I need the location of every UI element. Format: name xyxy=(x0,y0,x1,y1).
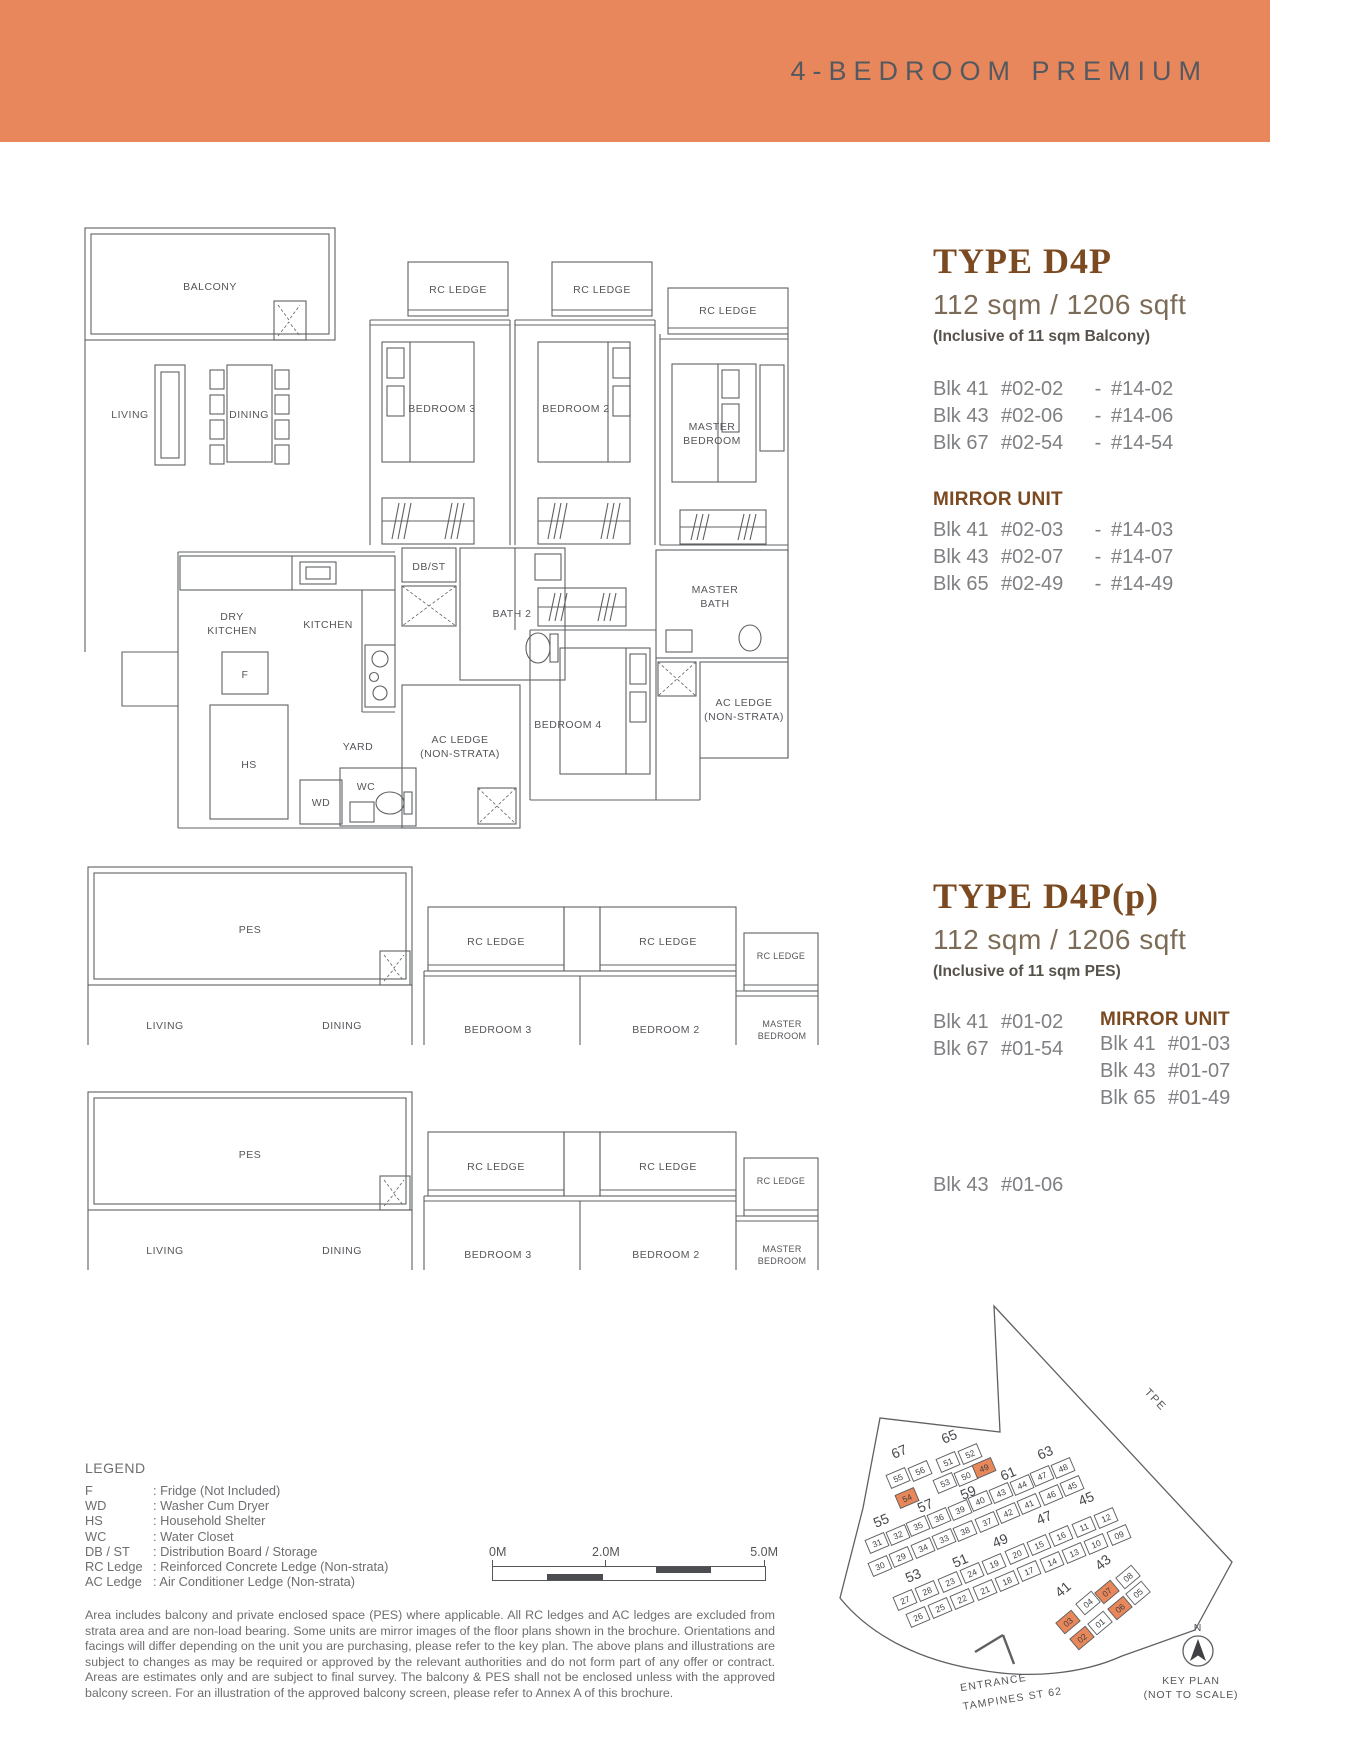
room-label-bedroom2: BEDROOM 2 xyxy=(542,403,610,415)
room-label-ac-ledge: (NON-STRATA) xyxy=(420,748,500,760)
key-plan-unit-highlighted: 54 xyxy=(895,1488,919,1509)
key-plan-unit: 12 xyxy=(1094,1508,1118,1529)
type-d4p-section: TYPE D4P 112 sqm / 1206 sqft (Inclusive … xyxy=(933,243,1323,598)
key-plan-unit: 19 xyxy=(982,1554,1006,1575)
room-label-ac-ledge: (NON-STRATA) xyxy=(704,711,784,723)
unit-row: Blk 67 #02-54 - #14-54 xyxy=(933,430,1323,457)
unit-to: #14-02 xyxy=(1111,376,1173,403)
unit-num: #01-07 xyxy=(1168,1058,1230,1085)
key-plan-unit: 20 xyxy=(1005,1544,1029,1565)
unit-row: Blk 65 #02-49 - #14-49 xyxy=(933,571,1323,598)
type-d4p-p-title: TYPE D4P(p) xyxy=(933,878,1333,916)
type-d4p-area-note: (Inclusive of 11 sqm Balcony) xyxy=(933,328,1323,346)
unit-to: #14-03 xyxy=(1111,517,1173,544)
room-label-ac-ledge: AC LEDGE xyxy=(715,697,772,709)
unit-to: #14-06 xyxy=(1111,403,1173,430)
room-label-master-bath: BATH xyxy=(700,598,729,610)
legend-desc: : Reinforced Concrete Ledge (Non-strata) xyxy=(153,1559,388,1574)
key-plan-block-label: 41 xyxy=(1052,1578,1074,1600)
unit-blk: Blk 65 xyxy=(1100,1085,1168,1112)
unit-row: Blk 43 #01-07 xyxy=(1100,1058,1230,1085)
unit-to: #14-49 xyxy=(1111,571,1173,598)
key-plan-caption: (NOT TO SCALE) xyxy=(1144,1689,1239,1701)
key-plan-unit: 33 xyxy=(932,1529,956,1550)
key-plan-unit: 30 xyxy=(868,1556,892,1577)
key-plan-block-label: 67 xyxy=(889,1441,910,1462)
unit-blk: Blk 43 xyxy=(933,1172,1001,1199)
scale-bar: 0M 2.0M 5.0M xyxy=(492,1545,770,1585)
unit-separator: - xyxy=(1085,571,1111,598)
room-label-bedroom3: BEDROOM 3 xyxy=(464,1249,532,1261)
unit-to: #14-07 xyxy=(1111,544,1173,571)
unit-row: Blk 43 #02-07 - #14-07 xyxy=(933,544,1323,571)
unit-blk: Blk 67 xyxy=(933,430,1001,457)
key-plan-unit: 31 xyxy=(865,1533,889,1554)
entrance-arrow xyxy=(975,1635,1014,1664)
room-label-db-st: DB/ST xyxy=(412,561,446,573)
unit-num: #01-54 xyxy=(1001,1036,1063,1063)
unit-row: Blk 41 #02-02 - #14-02 xyxy=(933,376,1323,403)
compass-north-label: N xyxy=(1194,1622,1202,1634)
key-plan-unit: 51 xyxy=(936,1452,960,1473)
key-plan-unit: 10 xyxy=(1084,1534,1108,1555)
room-label-rc-ledge: RC LEDGE xyxy=(639,1161,697,1173)
unit-blk: Blk 67 xyxy=(933,1036,1001,1063)
scale-bar-rule xyxy=(492,1566,766,1581)
unit-blk: Blk 43 xyxy=(933,544,1001,571)
compass-needle-icon xyxy=(1190,1639,1206,1661)
road-label-tpe: TPE xyxy=(1142,1386,1169,1413)
key-plan-unit: 28 xyxy=(915,1581,939,1602)
room-label-pes: PES xyxy=(239,1149,262,1161)
unit-blk: Blk 41 xyxy=(933,1009,1001,1036)
legend-desc: : Washer Cum Dryer xyxy=(153,1498,269,1513)
legend-abbr: WD xyxy=(85,1498,153,1513)
unit-blk: Blk 41 xyxy=(933,376,1001,403)
key-plan-unit: 17 xyxy=(1017,1561,1041,1582)
key-plan-unit: 25 xyxy=(928,1598,952,1619)
type-d4p-p-unit-list: Blk 41 #01-02 Blk 67 #01-54 xyxy=(933,1009,1100,1112)
unit-blk: Blk 41 xyxy=(933,517,1001,544)
legend-row: F : Fridge (Not Included) xyxy=(85,1483,388,1498)
room-label-rc-ledge: RC LEDGE xyxy=(757,1176,805,1186)
key-plan-unit: 27 xyxy=(893,1590,917,1611)
key-plan-block-label: 55 xyxy=(871,1510,892,1531)
room-label-living: LIVING xyxy=(146,1020,183,1032)
legend-desc: : Air Conditioner Ledge (Non-strata) xyxy=(153,1574,355,1589)
room-label-rc-ledge: RC LEDGE xyxy=(573,284,631,296)
unit-separator: - xyxy=(1085,517,1111,544)
room-label-hs: HS xyxy=(241,759,257,771)
key-plan-unit: 43 xyxy=(989,1483,1013,1504)
page-title: 4-BEDROOM PREMIUM xyxy=(790,0,1208,142)
room-label-dry-kitchen: DRY xyxy=(220,611,243,623)
key-plan-unit: 15 xyxy=(1027,1535,1051,1556)
room-label-dry-kitchen: KITCHEN xyxy=(207,625,257,637)
unit-from: #02-49 xyxy=(1001,571,1085,598)
key-plan-unit: 32 xyxy=(886,1525,910,1546)
unit-row: Blk 65 #01-49 xyxy=(1100,1085,1230,1112)
legend-abbr: RC Ledge xyxy=(85,1559,153,1574)
room-label-rc-ledge: RC LEDGE xyxy=(639,936,697,948)
disclaimer-text: Area includes balcony and private enclos… xyxy=(85,1608,775,1702)
type-d4p-mirror-list: Blk 41 #02-03 - #14-03 Blk 43 #02-07 - #… xyxy=(933,517,1323,598)
key-plan-unit: 11 xyxy=(1072,1517,1096,1538)
key-plan-unit: 39 xyxy=(948,1500,972,1521)
key-plan-unit: 56 xyxy=(908,1461,932,1482)
room-label-rc-ledge: RC LEDGE xyxy=(467,936,525,948)
room-label-bedroom3: BEDROOM 3 xyxy=(464,1024,532,1036)
scale-bar-segment xyxy=(656,1567,711,1573)
room-label-wc: WC xyxy=(357,781,376,793)
legend-desc: : Household Shelter xyxy=(153,1513,265,1528)
room-label-master-bedroom: BEDROOM xyxy=(758,1031,807,1041)
legend-abbr: F xyxy=(85,1483,153,1498)
legend-abbr: DB / ST xyxy=(85,1544,153,1559)
key-plan-unit: 13 xyxy=(1062,1543,1086,1564)
key-plan-unit: 16 xyxy=(1049,1526,1073,1547)
key-plan-unit: 22 xyxy=(950,1589,974,1610)
legend-title: LEGEND xyxy=(85,1460,388,1476)
room-label-rc-ledge: RC LEDGE xyxy=(467,1161,525,1173)
legend-row: WD : Washer Cum Dryer xyxy=(85,1498,388,1513)
room-label-kitchen: KITCHEN xyxy=(303,619,353,631)
unit-num: #01-49 xyxy=(1168,1085,1230,1112)
legend-abbr: AC Ledge xyxy=(85,1574,153,1589)
legend-abbr: WC xyxy=(85,1529,153,1544)
unit-from: #02-06 xyxy=(1001,403,1085,430)
unit-from: #02-03 xyxy=(1001,517,1085,544)
legend-row: WC : Water Closet xyxy=(85,1529,388,1544)
key-plan-block-label: 53 xyxy=(903,1565,924,1586)
key-plan: 6765636159575553514947454341 55565451525… xyxy=(770,1290,1240,1720)
room-label-dining: DINING xyxy=(322,1020,362,1032)
room-label-bedroom3: BEDROOM 3 xyxy=(408,403,476,415)
mirror-unit-heading: MIRROR UNIT xyxy=(1100,1009,1230,1031)
room-label-rc-ledge: RC LEDGE xyxy=(429,284,487,296)
unit-num: #01-02 xyxy=(1001,1009,1063,1036)
key-plan-unit: 01 xyxy=(1088,1611,1112,1635)
site-boundary xyxy=(840,1306,1232,1674)
key-plan-unit: 34 xyxy=(911,1538,935,1559)
key-plan-unit: 26 xyxy=(906,1607,930,1628)
type-d4p-unit-list: Blk 41 #02-02 - #14-02 Blk 43 #02-06 - #… xyxy=(933,376,1323,457)
unit-separator: - xyxy=(1085,376,1111,403)
unit-num: #01-06 xyxy=(1001,1172,1063,1199)
room-label-bedroom2: BEDROOM 2 xyxy=(632,1024,700,1036)
unit-blk: Blk 65 xyxy=(933,571,1001,598)
type-d4p-p-section: TYPE D4P(p) 112 sqm / 1206 sqft (Inclusi… xyxy=(933,878,1333,1112)
key-plan-unit: 35 xyxy=(906,1516,930,1537)
legend-row: HS : Household Shelter xyxy=(85,1513,388,1528)
room-label-rc-ledge: RC LEDGE xyxy=(757,951,805,961)
key-plan-unit: 55 xyxy=(886,1468,910,1489)
unit-blk: Blk 43 xyxy=(1100,1058,1168,1085)
entrance-label: ENTRANCE xyxy=(959,1672,1027,1694)
room-label-dining: DINING xyxy=(229,409,269,421)
key-plan-unit: 53 xyxy=(933,1473,957,1494)
key-plan-unit: 14 xyxy=(1040,1552,1064,1573)
legend-row: RC Ledge : Reinforced Concrete Ledge (No… xyxy=(85,1559,388,1574)
scale-label-0m: 0M xyxy=(489,1545,506,1559)
legend-desc: : Fridge (Not Included) xyxy=(153,1483,280,1498)
legend-row: AC Ledge : Air Conditioner Ledge (Non-st… xyxy=(85,1574,388,1589)
room-label-bedroom4: BEDROOM 4 xyxy=(534,719,602,731)
scale-bar-segment xyxy=(547,1574,603,1580)
type-d4p-title: TYPE D4P xyxy=(933,243,1323,281)
floor-plan-type-d4p-p-2: PES LIVING DINING RC LEDGE RC LEDGE RC L… xyxy=(60,1080,820,1270)
room-label-rc-ledge: RC LEDGE xyxy=(699,305,757,317)
key-plan-unit: 42 xyxy=(996,1503,1020,1524)
unit-separator: - xyxy=(1085,430,1111,457)
unit-row: Blk 41 #02-03 - #14-03 xyxy=(933,517,1323,544)
unit-num: #01-03 xyxy=(1168,1031,1230,1058)
key-plan-unit: 29 xyxy=(889,1547,913,1568)
legend-desc: : Distribution Board / Storage xyxy=(153,1544,317,1559)
type-d4p-p-area-note: (Inclusive of 11 sqm PES) xyxy=(933,963,1333,981)
room-label-bedroom2: BEDROOM 2 xyxy=(632,1249,700,1261)
key-plan-unit: 46 xyxy=(1039,1485,1063,1506)
room-label-pes: PES xyxy=(239,924,262,936)
key-plan-unit-highlighted: 03 xyxy=(1056,1610,1080,1634)
key-plan-unit: 48 xyxy=(1051,1458,1075,1479)
unit-separator: - xyxy=(1085,544,1111,571)
legend-desc: : Water Closet xyxy=(153,1529,234,1544)
unit-separator: - xyxy=(1085,403,1111,430)
unit-from: #02-02 xyxy=(1001,376,1085,403)
type-d4p-p-mirror-list: MIRROR UNIT Blk 41 #01-03 Blk 43 #01-07 … xyxy=(1100,1009,1230,1112)
floor-plan-type-d4p: BALCONY LIVING DINING RC LEDGE RC LEDGE … xyxy=(60,200,790,830)
unit-row: Blk 41 #01-02 xyxy=(933,1009,1100,1036)
key-plan-unit: 09 xyxy=(1107,1525,1131,1546)
scale-label-2m: 2.0M xyxy=(592,1545,620,1559)
type-d4p-area: 112 sqm / 1206 sqft xyxy=(933,289,1323,321)
unit-row: Blk 43 #02-06 - #14-06 xyxy=(933,403,1323,430)
key-plan-unit-highlighted: 06 xyxy=(1108,1596,1132,1620)
legend-abbr: HS xyxy=(85,1513,153,1528)
legend-row: DB / ST : Distribution Board / Storage xyxy=(85,1544,388,1559)
key-plan-unit-highlighted: 02 xyxy=(1070,1626,1094,1650)
key-plan-block-label: 65 xyxy=(939,1426,960,1447)
key-plan-unit: 47 xyxy=(1030,1466,1054,1487)
room-label-dining: DINING xyxy=(322,1245,362,1257)
key-plan-block-label: 63 xyxy=(1035,1442,1056,1463)
key-plan-unit: 23 xyxy=(938,1572,962,1593)
key-plan-block-label: 47 xyxy=(1034,1507,1055,1528)
key-plan-unit: 18 xyxy=(995,1571,1019,1592)
type-d4p-p-area: 112 sqm / 1206 sqft xyxy=(933,924,1333,956)
type-d4p-p-extra-unit: Blk 43 #01-06 xyxy=(933,1172,1063,1199)
room-label-wd: WD xyxy=(312,797,331,809)
room-label-living: LIVING xyxy=(146,1245,183,1257)
key-plan-block-label: 43 xyxy=(1092,1551,1114,1573)
unit-to: #14-54 xyxy=(1111,430,1173,457)
room-label-master-bedroom: MASTER xyxy=(762,1244,802,1254)
room-label-master-bedroom: MASTER xyxy=(689,421,736,433)
room-label-fridge: F xyxy=(242,669,249,681)
key-plan-unit: 38 xyxy=(953,1521,977,1542)
room-label-bath2: BATH 2 xyxy=(493,608,532,620)
room-label-master-bedroom: BEDROOM xyxy=(758,1256,807,1266)
floor-plan-type-d4p-p-1: PES LIVING DINING RC LEDGE RC LEDGE RC L… xyxy=(60,855,820,1045)
key-plan-caption: KEY PLAN xyxy=(1162,1675,1220,1687)
unit-row: Blk 67 #01-54 xyxy=(933,1036,1100,1063)
unit-from: #02-07 xyxy=(1001,544,1085,571)
room-label-living: LIVING xyxy=(111,409,148,421)
unit-blk: Blk 41 xyxy=(1100,1031,1168,1058)
unit-from: #02-54 xyxy=(1001,430,1085,457)
legend: LEGEND F : Fridge (Not Included) WD : Wa… xyxy=(85,1460,388,1589)
room-label-master-bedroom: BEDROOM xyxy=(683,435,741,447)
key-plan-unit: 37 xyxy=(975,1512,999,1533)
room-label-master-bath: MASTER xyxy=(692,584,739,596)
room-label-master-bedroom: MASTER xyxy=(762,1019,802,1029)
header-banner: 4-BEDROOM PREMIUM xyxy=(0,0,1270,142)
unit-row: Blk 41 #01-03 xyxy=(1100,1031,1230,1058)
mirror-unit-heading: MIRROR UNIT xyxy=(933,489,1323,511)
key-plan-unit: 21 xyxy=(973,1580,997,1601)
key-plan-block-label: 49 xyxy=(990,1530,1011,1551)
room-label-balcony: BALCONY xyxy=(183,281,237,293)
unit-blk: Blk 43 xyxy=(933,403,1001,430)
room-label-ac-ledge: AC LEDGE xyxy=(431,734,488,746)
key-plan-unit: 52 xyxy=(958,1444,982,1465)
room-label-yard: YARD xyxy=(343,741,373,753)
